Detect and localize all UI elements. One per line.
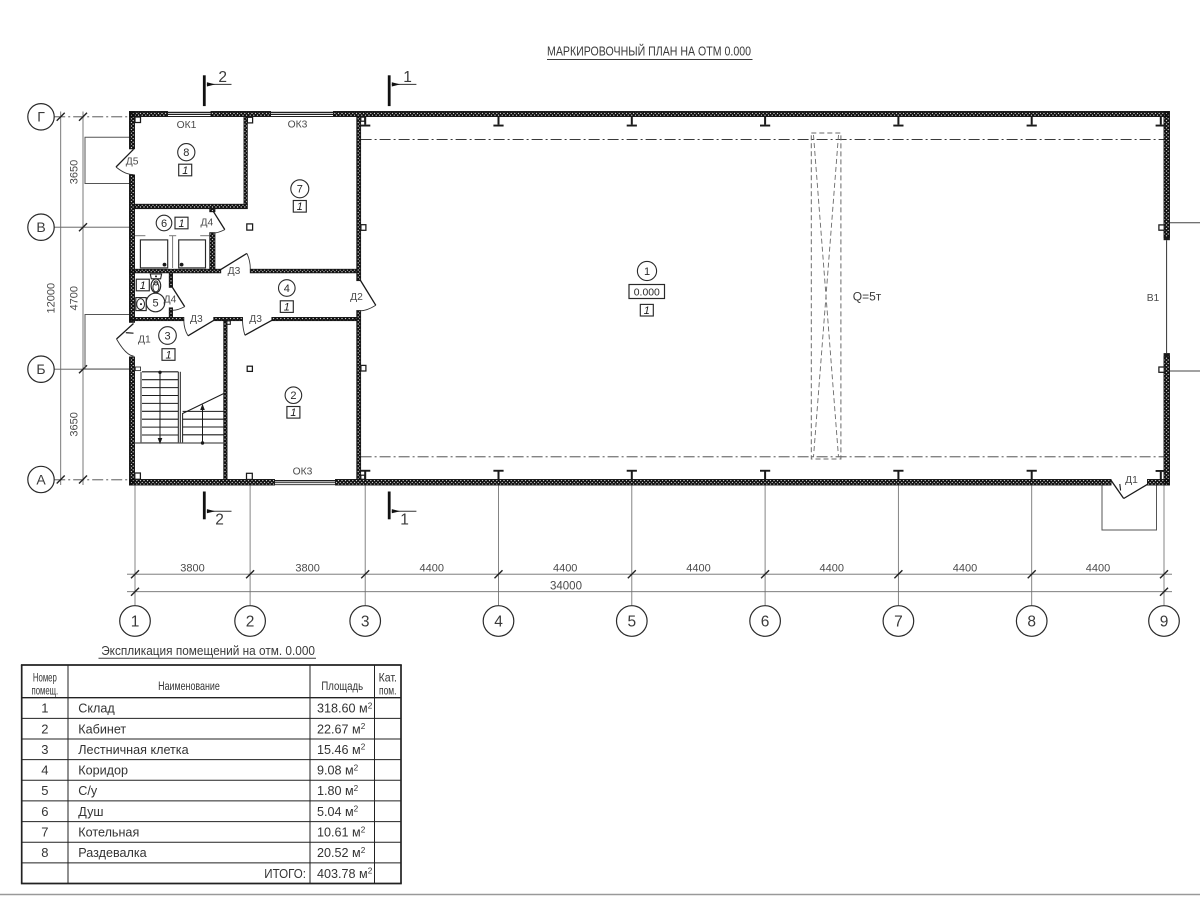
svg-text:1: 1 (41, 701, 48, 716)
svg-text:1: 1 (165, 349, 171, 361)
svg-text:4400: 4400 (1086, 563, 1110, 575)
svg-text:6: 6 (41, 804, 48, 819)
svg-text:4: 4 (494, 613, 503, 630)
svg-text:Д5: Д5 (126, 156, 139, 167)
svg-text:3650: 3650 (69, 412, 81, 436)
svg-text:2: 2 (246, 613, 255, 630)
svg-text:ОК3: ОК3 (293, 467, 313, 478)
svg-text:Душ: Душ (78, 805, 103, 819)
svg-text:Д1: Д1 (1125, 475, 1138, 486)
svg-text:22.67 м2: 22.67 м2 (317, 722, 366, 736)
svg-text:4400: 4400 (820, 563, 844, 575)
svg-text:1: 1 (284, 302, 290, 314)
svg-text:2: 2 (218, 69, 227, 86)
svg-text:4700: 4700 (69, 286, 81, 310)
svg-text:В: В (36, 219, 45, 235)
svg-text:ИТОГО:: ИТОГО: (264, 867, 306, 881)
svg-text:Коридор: Коридор (78, 764, 128, 778)
svg-text:1: 1 (403, 69, 412, 86)
svg-text:9: 9 (1160, 613, 1169, 630)
svg-text:помещ.: помещ. (31, 684, 58, 698)
svg-text:Кат.: Кат. (379, 670, 397, 684)
svg-text:4400: 4400 (553, 563, 577, 575)
svg-text:8: 8 (183, 147, 189, 159)
svg-text:Д3: Д3 (249, 314, 262, 325)
svg-text:1: 1 (400, 512, 409, 529)
svg-text:10.61 м2: 10.61 м2 (317, 825, 366, 839)
svg-text:МАРКИРОВОЧНЫЙ ПЛАН НА ОТМ 0.00: МАРКИРОВОЧНЫЙ ПЛАН НА ОТМ 0.000 (547, 43, 751, 58)
svg-text:7: 7 (894, 613, 903, 630)
svg-text:пом.: пом. (379, 684, 397, 698)
svg-text:1: 1 (178, 218, 184, 230)
svg-text:0.000: 0.000 (634, 287, 660, 298)
svg-text:1: 1 (290, 407, 296, 419)
svg-text:1: 1 (644, 305, 650, 317)
svg-text:1: 1 (131, 613, 140, 630)
svg-text:1: 1 (297, 201, 303, 213)
svg-text:3800: 3800 (180, 563, 204, 575)
svg-text:4400: 4400 (953, 563, 977, 575)
svg-text:2: 2 (290, 390, 296, 402)
svg-text:Раздевалка: Раздевалка (78, 846, 146, 860)
svg-text:12000: 12000 (46, 283, 58, 314)
svg-text:Котельная: Котельная (78, 825, 139, 839)
svg-text:4: 4 (41, 763, 48, 778)
svg-text:Д1: Д1 (138, 335, 151, 346)
svg-text:318.60 м2: 318.60 м2 (317, 701, 373, 715)
svg-text:Г: Г (37, 109, 45, 125)
svg-text:ОК3: ОК3 (288, 120, 308, 131)
svg-text:2: 2 (41, 721, 48, 736)
svg-text:Лестничная клетка: Лестничная клетка (78, 743, 188, 757)
svg-text:Д3: Д3 (190, 314, 203, 325)
svg-text:Q=5т: Q=5т (853, 290, 882, 304)
svg-text:С/у: С/у (78, 784, 98, 798)
svg-text:ОК1: ОК1 (177, 120, 197, 131)
svg-text:5: 5 (41, 783, 48, 798)
svg-text:Б: Б (36, 361, 45, 377)
svg-text:3: 3 (164, 330, 170, 342)
svg-text:5.04 м2: 5.04 м2 (317, 805, 359, 819)
svg-text:34000: 34000 (550, 581, 582, 593)
svg-text:7: 7 (297, 184, 303, 196)
svg-text:Наименование: Наименование (158, 679, 220, 693)
svg-text:20.52 м2: 20.52 м2 (317, 846, 366, 860)
svg-text:4: 4 (284, 283, 290, 295)
svg-text:Площадь: Площадь (321, 679, 363, 693)
svg-text:Д3: Д3 (228, 266, 241, 277)
svg-text:3800: 3800 (295, 563, 319, 575)
svg-text:3650: 3650 (69, 160, 81, 184)
svg-text:Кабинет: Кабинет (78, 722, 126, 736)
svg-text:8: 8 (41, 845, 48, 860)
svg-text:5: 5 (627, 613, 636, 630)
svg-text:3: 3 (361, 613, 370, 630)
svg-text:4400: 4400 (420, 563, 444, 575)
svg-text:1.80 м2: 1.80 м2 (317, 784, 359, 798)
svg-text:7: 7 (41, 824, 48, 839)
svg-text:3: 3 (41, 742, 48, 757)
svg-text:Д2: Д2 (350, 292, 363, 303)
svg-text:Склад: Склад (78, 702, 115, 716)
svg-text:5: 5 (152, 297, 158, 309)
svg-text:2: 2 (215, 512, 224, 529)
svg-text:8: 8 (1027, 613, 1036, 630)
svg-text:1: 1 (182, 165, 188, 177)
svg-text:Номер: Номер (33, 670, 57, 684)
svg-text:4400: 4400 (686, 563, 710, 575)
svg-text:Экспликация помещений на отм.: Экспликация помещений на отм. 0.000 (101, 644, 315, 658)
svg-text:1: 1 (644, 266, 650, 278)
svg-text:9.08 м2: 9.08 м2 (317, 763, 359, 777)
svg-text:15.46 м2: 15.46 м2 (317, 743, 366, 757)
svg-text:А: А (36, 471, 46, 487)
svg-text:6: 6 (761, 613, 770, 630)
svg-text:В1: В1 (1147, 293, 1160, 304)
svg-text:Д4: Д4 (201, 217, 214, 228)
svg-text:6: 6 (161, 218, 167, 230)
svg-text:Д4: Д4 (164, 295, 177, 306)
svg-text:1: 1 (140, 280, 146, 292)
svg-text:403.78 м2: 403.78 м2 (317, 867, 373, 881)
